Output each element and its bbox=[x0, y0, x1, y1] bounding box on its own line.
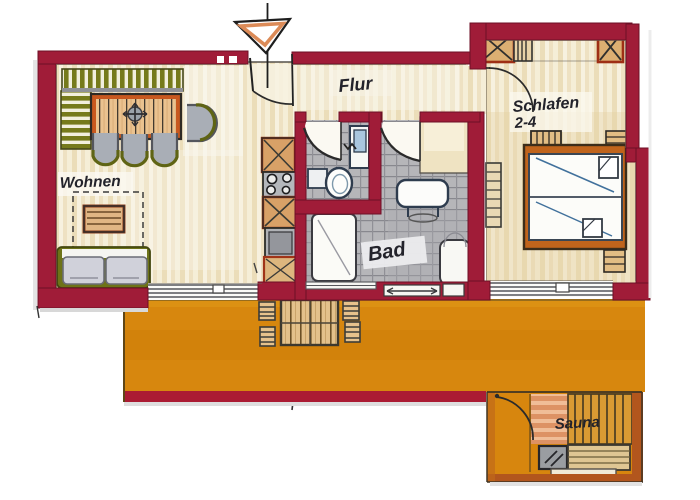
svg-text:2-4: 2-4 bbox=[513, 113, 537, 132]
svg-text:Wohnen: Wohnen bbox=[60, 173, 121, 192]
svg-text:Sauna: Sauna bbox=[554, 414, 600, 433]
svg-text:Flur: Flur bbox=[338, 73, 375, 96]
